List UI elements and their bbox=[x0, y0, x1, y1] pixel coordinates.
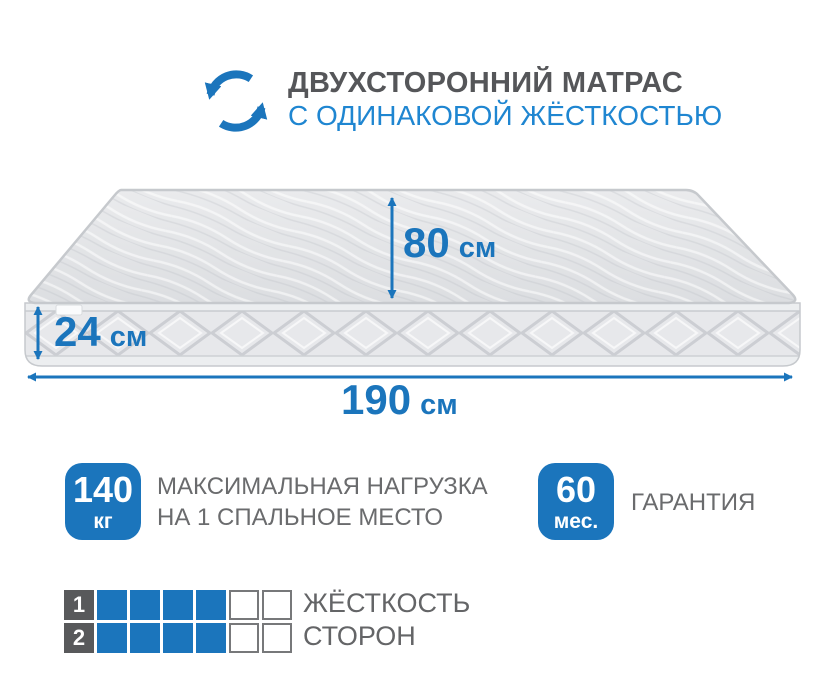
warranty-badge: 60 мес. bbox=[538, 463, 614, 540]
max-load-label-line1: МАКСИМАЛЬНАЯ НАГРУЗКА bbox=[157, 471, 488, 502]
max-load-unit: кг bbox=[93, 511, 112, 532]
hardness-caption: ЖЁСТКОСТЬ СТОРОН bbox=[303, 587, 470, 653]
side-number-square: 2 bbox=[64, 623, 94, 653]
hardness-filled-square bbox=[97, 623, 127, 653]
width-value: 80 bbox=[403, 222, 450, 264]
hardness-filled-square bbox=[196, 590, 226, 620]
hardness-filled-square bbox=[130, 623, 160, 653]
width-unit: см bbox=[459, 234, 497, 263]
mattress-infographic: ДВУХСТОРОННИЙ МАТРАС С ОДИНАКОВОЙ ЖЁСТКО… bbox=[0, 0, 816, 700]
hardness-caption-line1: ЖЁСТКОСТЬ bbox=[303, 587, 470, 620]
max-load-label-line2: НА 1 СПАЛЬНОЕ МЕСТО bbox=[157, 502, 488, 533]
warranty-label: ГАРАНТИЯ bbox=[631, 487, 755, 518]
side-number-square: 1 bbox=[64, 590, 94, 620]
hardness-caption-line2: СТОРОН bbox=[303, 620, 470, 653]
max-load-label: МАКСИМАЛЬНАЯ НАГРУЗКА НА 1 СПАЛЬНОЕ МЕСТ… bbox=[157, 471, 488, 533]
warranty-label-line1: ГАРАНТИЯ bbox=[631, 487, 755, 518]
max-load-value: 140 bbox=[73, 472, 133, 508]
hardness-empty-square bbox=[229, 623, 259, 653]
hardness-filled-square bbox=[97, 590, 127, 620]
hardness-empty-square bbox=[262, 623, 292, 653]
warranty-value: 60 bbox=[556, 472, 596, 508]
length-value: 190 bbox=[341, 379, 411, 421]
length-unit: см bbox=[420, 391, 458, 420]
height-dimension-label: 24 см bbox=[54, 311, 147, 353]
hardness-filled-square bbox=[163, 590, 193, 620]
warranty-unit: мес. bbox=[554, 511, 598, 532]
height-unit: см bbox=[110, 323, 148, 352]
hardness-filled-square bbox=[130, 590, 160, 620]
hardness-filled-square bbox=[163, 623, 193, 653]
hardness-filled-square bbox=[196, 623, 226, 653]
length-dimension-label: 190 см bbox=[341, 379, 458, 421]
max-load-badge: 140 кг bbox=[65, 463, 141, 540]
hardness-empty-square bbox=[229, 590, 259, 620]
hardness-empty-square bbox=[262, 590, 292, 620]
hardness-row-side1: 1 bbox=[64, 590, 292, 620]
width-dimension-label: 80 см bbox=[403, 222, 496, 264]
hardness-row-side2: 2 bbox=[64, 623, 292, 653]
height-value: 24 bbox=[54, 311, 101, 353]
